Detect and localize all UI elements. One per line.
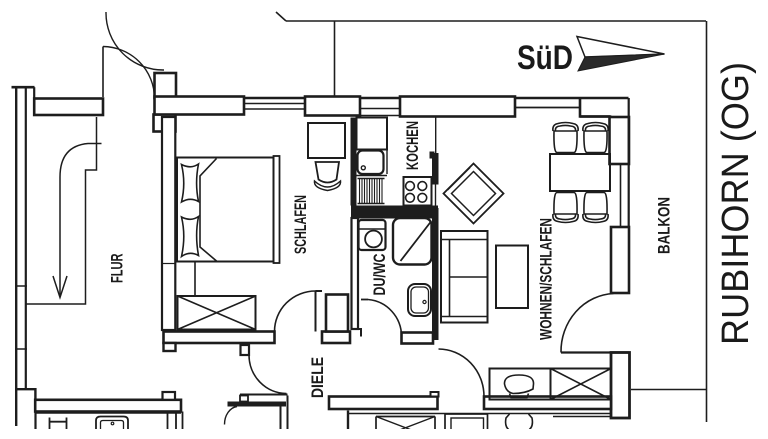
svg-text:KOCHEN: KOCHEN: [403, 121, 422, 170]
svg-text:BALKON: BALKON: [655, 197, 674, 254]
svg-text:DU/WC: DU/WC: [370, 254, 389, 296]
svg-text:SCHLAFEN: SCHLAFEN: [291, 195, 310, 254]
svg-text:RUBIHORN (OG): RUBIHORN (OG): [715, 62, 757, 345]
svg-text:WOHNEN/SCHLAFEN: WOHNEN/SCHLAFEN: [537, 218, 556, 340]
svg-text:DIELE: DIELE: [308, 357, 327, 398]
svg-text:SüD: SüD: [517, 39, 573, 77]
svg-text:FLUR: FLUR: [108, 254, 127, 284]
